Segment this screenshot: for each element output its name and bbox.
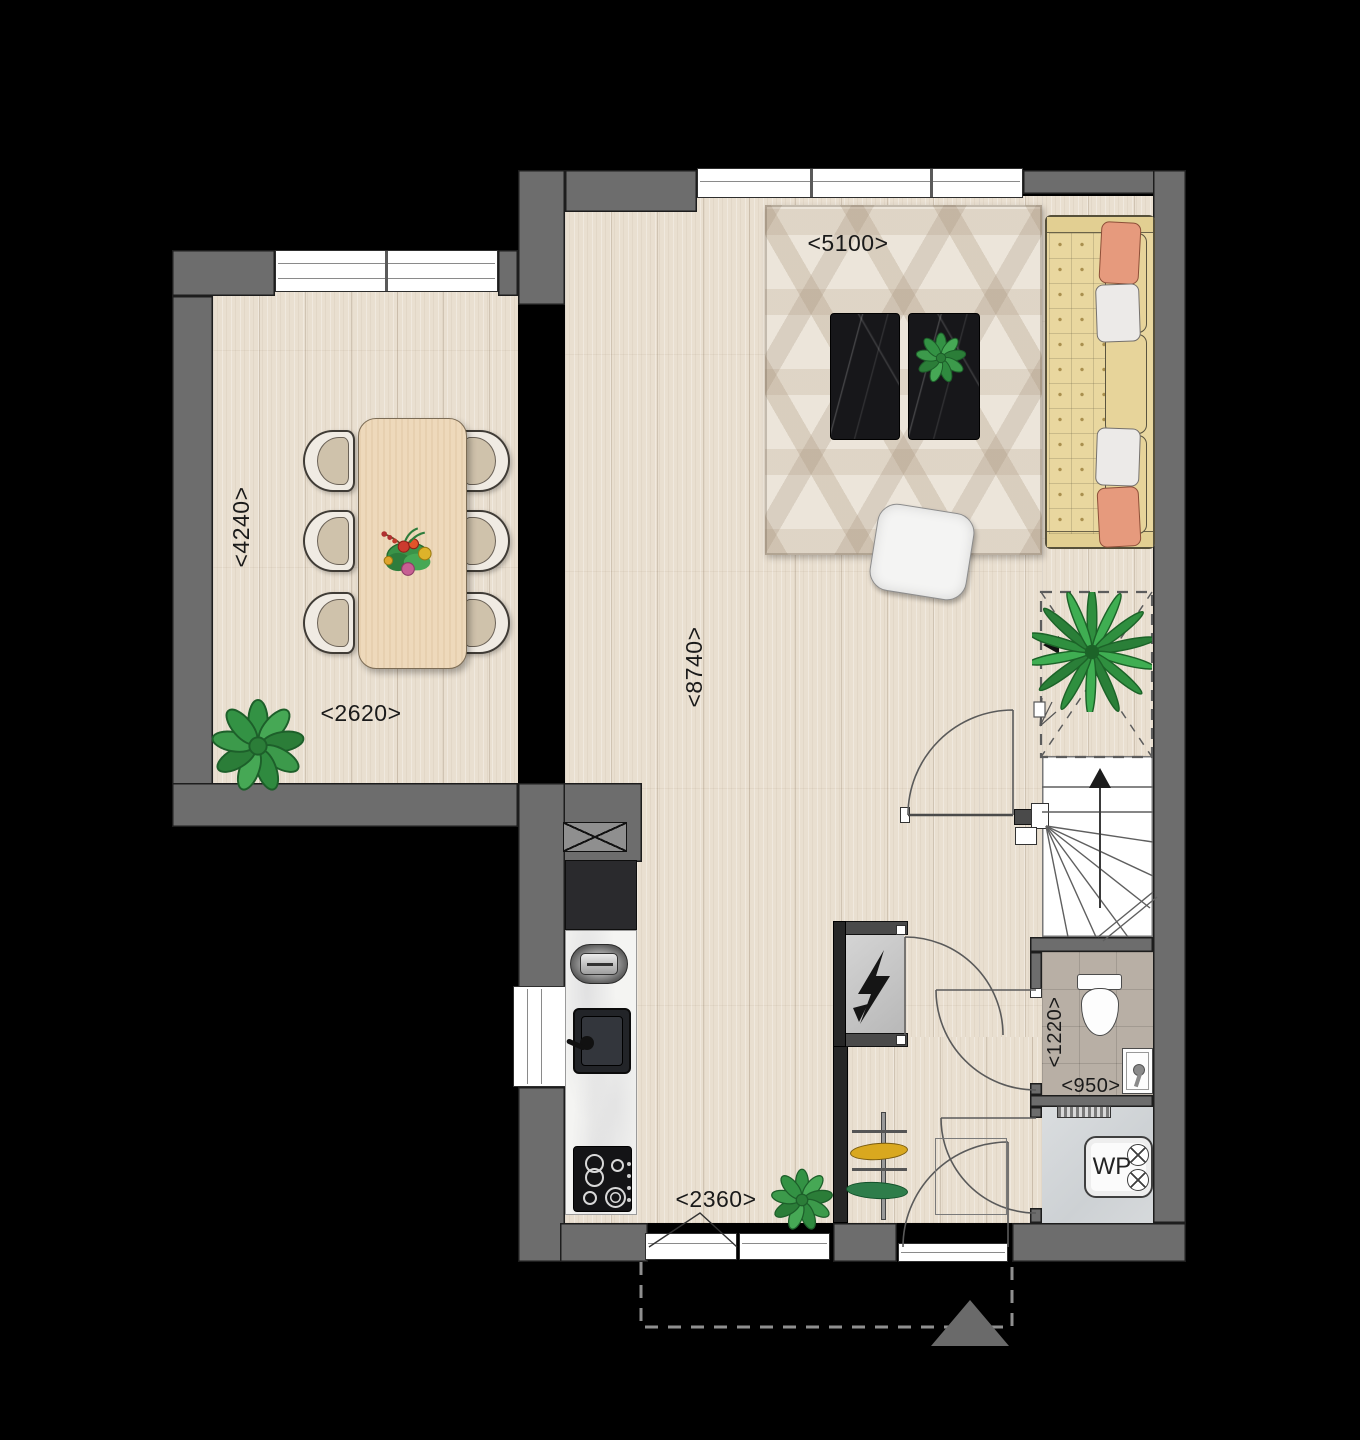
entrance-mat-outline	[935, 1138, 1007, 1215]
window-mullion	[385, 251, 388, 291]
sofa-pillow-white-bottom	[1095, 427, 1141, 487]
vent-shaft	[563, 822, 627, 852]
front-door-threshold	[898, 1243, 1008, 1262]
wall-dining-left	[172, 296, 213, 785]
stair-entry-post	[1031, 803, 1049, 829]
sofa-back-cushion	[1105, 334, 1147, 434]
entrance-arrow	[931, 1300, 1009, 1346]
vent-grille	[1057, 1106, 1111, 1118]
window-kitchen-south-left	[645, 1233, 737, 1260]
wall-bottom-kitchen	[560, 1223, 648, 1262]
window-kitchen-south-right	[739, 1233, 830, 1260]
dimension-living-width: <5100>	[778, 229, 918, 257]
dimension-house-depth: <8740>	[680, 597, 708, 737]
wall-step-block	[518, 170, 565, 305]
floorplan-canvas: WP	[0, 0, 1360, 1440]
pouf	[867, 501, 978, 603]
window-mullion	[930, 169, 933, 197]
coat-rack-bar	[852, 1130, 907, 1133]
dimension-dining-width: <2620>	[291, 699, 431, 727]
window-kitchen-west	[513, 986, 567, 1087]
wall-right-exterior	[1153, 170, 1186, 1223]
sofa-seat	[1049, 232, 1105, 534]
wall-tech-left-bottom	[1030, 1208, 1042, 1223]
wall-kitchen-left-upper	[518, 783, 565, 988]
window-mullion	[810, 169, 813, 197]
valve-icon	[1127, 1144, 1149, 1166]
palm-plant-icon	[1032, 592, 1152, 712]
dining-chair	[303, 430, 355, 492]
meter-cupboard-floor	[846, 935, 904, 1033]
coffee-table-left	[830, 313, 900, 440]
meterkast-post-bottom	[896, 1035, 906, 1045]
coat-rack-bar	[852, 1168, 907, 1171]
sofa-pillow-coral-top	[1098, 221, 1141, 285]
wall-top-left-corner	[172, 250, 275, 296]
meterkast-post-top	[896, 925, 906, 935]
wall-kitchen-left-lower	[518, 1087, 565, 1262]
wall-top-center	[565, 170, 697, 212]
wall-tech-left-top	[1030, 1107, 1042, 1118]
coffee-machine	[570, 944, 628, 984]
wall-hall-left	[833, 1045, 848, 1223]
valve-icon	[1127, 1169, 1149, 1191]
wall-bottom-pillar	[833, 1223, 897, 1262]
wall-dining-window-right	[498, 250, 518, 296]
living-room-rug	[765, 205, 1042, 555]
heat-pump-label: WP	[1086, 1138, 1132, 1196]
coat-rack-pole	[881, 1112, 886, 1220]
dimension-dining-depth: <4240>	[227, 457, 255, 597]
plant-icon	[915, 332, 967, 384]
heat-pump-unit: WP	[1084, 1136, 1153, 1198]
wall-bottom-right	[1012, 1223, 1186, 1262]
window-dining-north	[275, 250, 498, 292]
stair-newel-box	[1015, 827, 1037, 845]
sofa-pillow-white-top	[1095, 283, 1141, 343]
dining-chair	[303, 510, 355, 572]
tall-cabinet	[565, 860, 637, 930]
dining-chair	[303, 592, 355, 654]
partition-door-post	[900, 807, 910, 823]
flower-bouquet-icon	[373, 520, 443, 590]
wall-meterkast-left	[833, 921, 846, 1047]
wall-stairs-bottom	[1030, 937, 1153, 952]
dimension-kitchen-width: <2360>	[646, 1185, 786, 1213]
dimension-toilet-width: <950>	[1021, 1072, 1161, 1100]
sofa-pillow-coral-bottom	[1096, 486, 1141, 548]
cooktop	[573, 1146, 632, 1212]
window-living-north	[697, 168, 1023, 198]
staircase	[1042, 756, 1153, 937]
porch-dashed-outline	[641, 1262, 1012, 1327]
